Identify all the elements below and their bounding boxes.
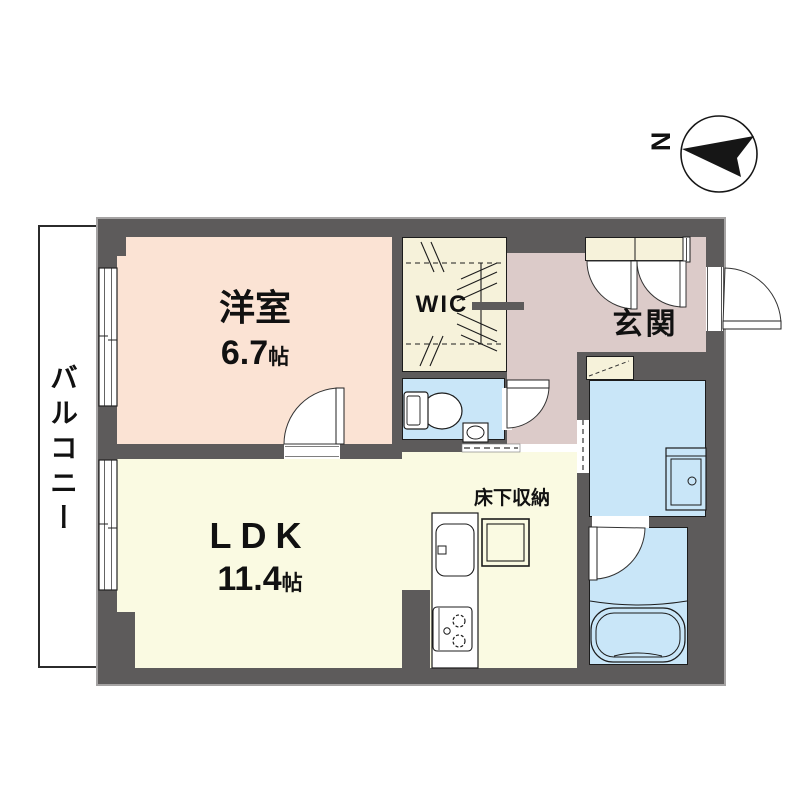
- window-icon: [99, 460, 117, 590]
- entrance-door-swing-icon: [706, 267, 781, 331]
- door-swing-icon: [589, 516, 649, 580]
- ldk-label: LDK: [160, 518, 360, 554]
- vanity-icon: [666, 448, 706, 510]
- western-room-size-value: 6.7: [221, 334, 268, 372]
- balcony-label: バルコニー: [48, 363, 76, 538]
- western-room-size-unit: 帖: [268, 346, 289, 369]
- door-swing-icon: [502, 380, 549, 430]
- kitchen-counter: [432, 513, 478, 668]
- ldk-size-value: 11.4: [217, 560, 281, 598]
- toilet-icon: [404, 392, 462, 429]
- door-swing-icon: [284, 388, 344, 459]
- washbasin-icon: [463, 423, 488, 442]
- western-room-size: 6.7帖: [185, 336, 325, 370]
- floor-plan: バルコニー 洋室 6.7帖 LDK 11.4帖 WIC 玄関 床下収納 N: [0, 0, 800, 800]
- entrance-label: 玄関: [585, 310, 706, 340]
- western-room-label: 洋室: [185, 290, 325, 326]
- sliding-door-icon: [462, 444, 520, 452]
- ldk-size: 11.4帖: [160, 562, 360, 596]
- bathtub-icon: [590, 601, 687, 662]
- compass-north-icon: [681, 116, 757, 192]
- shoe-cabinet-doors-icon: [587, 237, 690, 309]
- washer-shelf-dash: [589, 361, 629, 376]
- stove-icon: [433, 607, 472, 651]
- compass-north-label: N: [646, 132, 673, 152]
- underfloor-storage-icon: [482, 519, 529, 566]
- wic-label: WIC: [402, 293, 482, 317]
- ldk-size-unit: 帖: [282, 572, 303, 595]
- kitchen-sink-icon: [436, 524, 474, 576]
- sliding-door-icon: [577, 420, 589, 473]
- window-icon: [99, 268, 117, 406]
- plan-linework: [0, 0, 800, 800]
- underfloor-storage-label: 床下収納: [462, 489, 562, 508]
